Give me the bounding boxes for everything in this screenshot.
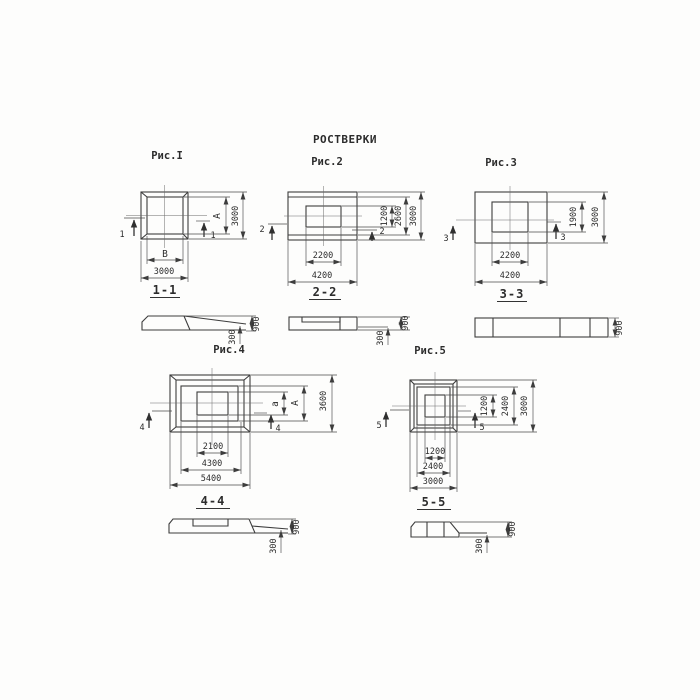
- fig5-inner-width-dim: 1200: [425, 447, 445, 457]
- fig3-inner-width-dim: 2200: [500, 251, 520, 261]
- sec2-total-height-dim: 900: [401, 315, 411, 330]
- figure-1-label: Рис.I: [151, 150, 183, 162]
- figure-2-plan: Рис.2 2 2 1200 2600 3000 2200 4200 2-2: [259, 156, 425, 300]
- fig3-outer-height-dim: 3000: [591, 207, 601, 227]
- figure-5-label: Рис.5: [414, 345, 446, 357]
- fig5-mid-height-dim: 2400: [501, 396, 511, 416]
- section-1-1-view: 900 300: [142, 316, 262, 345]
- sec1-edge-height-dim: 300: [228, 329, 238, 344]
- fig1-outer-width-dim: 3000: [154, 267, 174, 277]
- fig1-inner-width-dim: В: [162, 249, 168, 260]
- fig5-outer-width-dim: 3000: [423, 477, 443, 487]
- fig5-mid-width-dim: 2400: [423, 462, 443, 472]
- figure-3-label: Рис.3: [485, 157, 517, 169]
- fig1-inner-height-dim: А: [212, 213, 223, 219]
- cut-5-left-label: 5: [376, 421, 381, 431]
- section-2-2-title: 2-2: [313, 285, 338, 299]
- fig4-outer-width-dim: 5400: [201, 474, 221, 484]
- blueprint-page: РОСТВЕРКИ Рис.I 1 1 В 3000 А 3000 1-1: [0, 0, 700, 700]
- section-2-2-view: 900 300: [289, 315, 411, 345]
- sec4-edge-height-dim: 300: [269, 538, 279, 553]
- fig4-outer-height-dim: 3600: [319, 391, 329, 411]
- fig4-inner-height-dim: а: [270, 401, 281, 407]
- cut-2-right-label: 2: [379, 227, 384, 237]
- section-1-1-title: 1-1: [153, 283, 178, 297]
- figure-4-label: Рис.4: [213, 344, 245, 356]
- fig2-inner-width-dim: 2200: [313, 251, 333, 261]
- cut-2-left-label: 2: [259, 225, 264, 235]
- cut-4-right-label: 4: [275, 424, 280, 434]
- figure-3-plan: Рис.3 3 3 1900 3000 2200 4200 3-3: [443, 157, 608, 302]
- figure-2-label: Рис.2: [311, 156, 343, 168]
- cut-4-left-label: 4: [139, 423, 144, 433]
- fig2-outer-height-dim: 3000: [409, 206, 419, 226]
- fig2-inner-height-dim: 1200: [380, 206, 390, 226]
- cut-5-right-label: 5: [479, 423, 484, 433]
- section-4-4-view: 900 300: [169, 519, 302, 554]
- fig5-outer-height-dim: 3000: [520, 396, 530, 416]
- figure-5-plan: 5 5 1200 2400 3000 1200 2400 3000 5-5: [376, 372, 537, 510]
- fig2-mid-height-dim: 2600: [394, 206, 404, 226]
- fig3-inner-height-dim: 1900: [569, 207, 579, 227]
- fig3-outer-width-dim: 4200: [500, 271, 520, 281]
- figure-1-plan: Рис.I 1 1 В 3000 А 3000 1-1: [119, 150, 247, 298]
- cut-3-right-label: 3: [560, 233, 565, 243]
- drawing-title: РОСТВЕРКИ: [313, 133, 377, 146]
- figure-4-plan: 4 4 а А 3600 2100 4300 5400 4-4: [139, 368, 337, 509]
- section-4-4-title: 4-4: [201, 494, 226, 508]
- sec3-total-height-dim: 900: [615, 320, 625, 335]
- cut-3-left-label: 3: [443, 234, 448, 244]
- fig5-inner-height-dim: 1200: [480, 396, 490, 416]
- fig1-outer-height-dim: 3000: [231, 206, 241, 226]
- section-3-3-view: 900: [475, 318, 625, 337]
- sec5-total-height-dim: 900: [508, 521, 518, 536]
- section-5-5-view: 900 300: [411, 521, 518, 553]
- cut-1-right-label: 1: [210, 231, 215, 241]
- grillage-drawing-canvas: РОСТВЕРКИ Рис.I 1 1 В 3000 А 3000 1-1: [0, 0, 700, 700]
- sec4-total-height-dim: 900: [292, 519, 302, 534]
- fig2-outer-width-dim: 4200: [312, 271, 332, 281]
- section-5-5-title: 5-5: [422, 495, 447, 509]
- cut-1-left-label: 1: [119, 230, 124, 240]
- sec1-total-height-dim: 900: [252, 316, 262, 331]
- sec2-edge-height-dim: 300: [376, 330, 386, 345]
- fig4-mid-height-dim: А: [290, 400, 301, 406]
- section-3-3-title: 3-3: [500, 287, 525, 301]
- fig4-inner-width-dim: 2100: [203, 442, 223, 452]
- fig4-mid-width-dim: 4300: [202, 459, 222, 469]
- sec5-edge-height-dim: 300: [475, 538, 485, 553]
